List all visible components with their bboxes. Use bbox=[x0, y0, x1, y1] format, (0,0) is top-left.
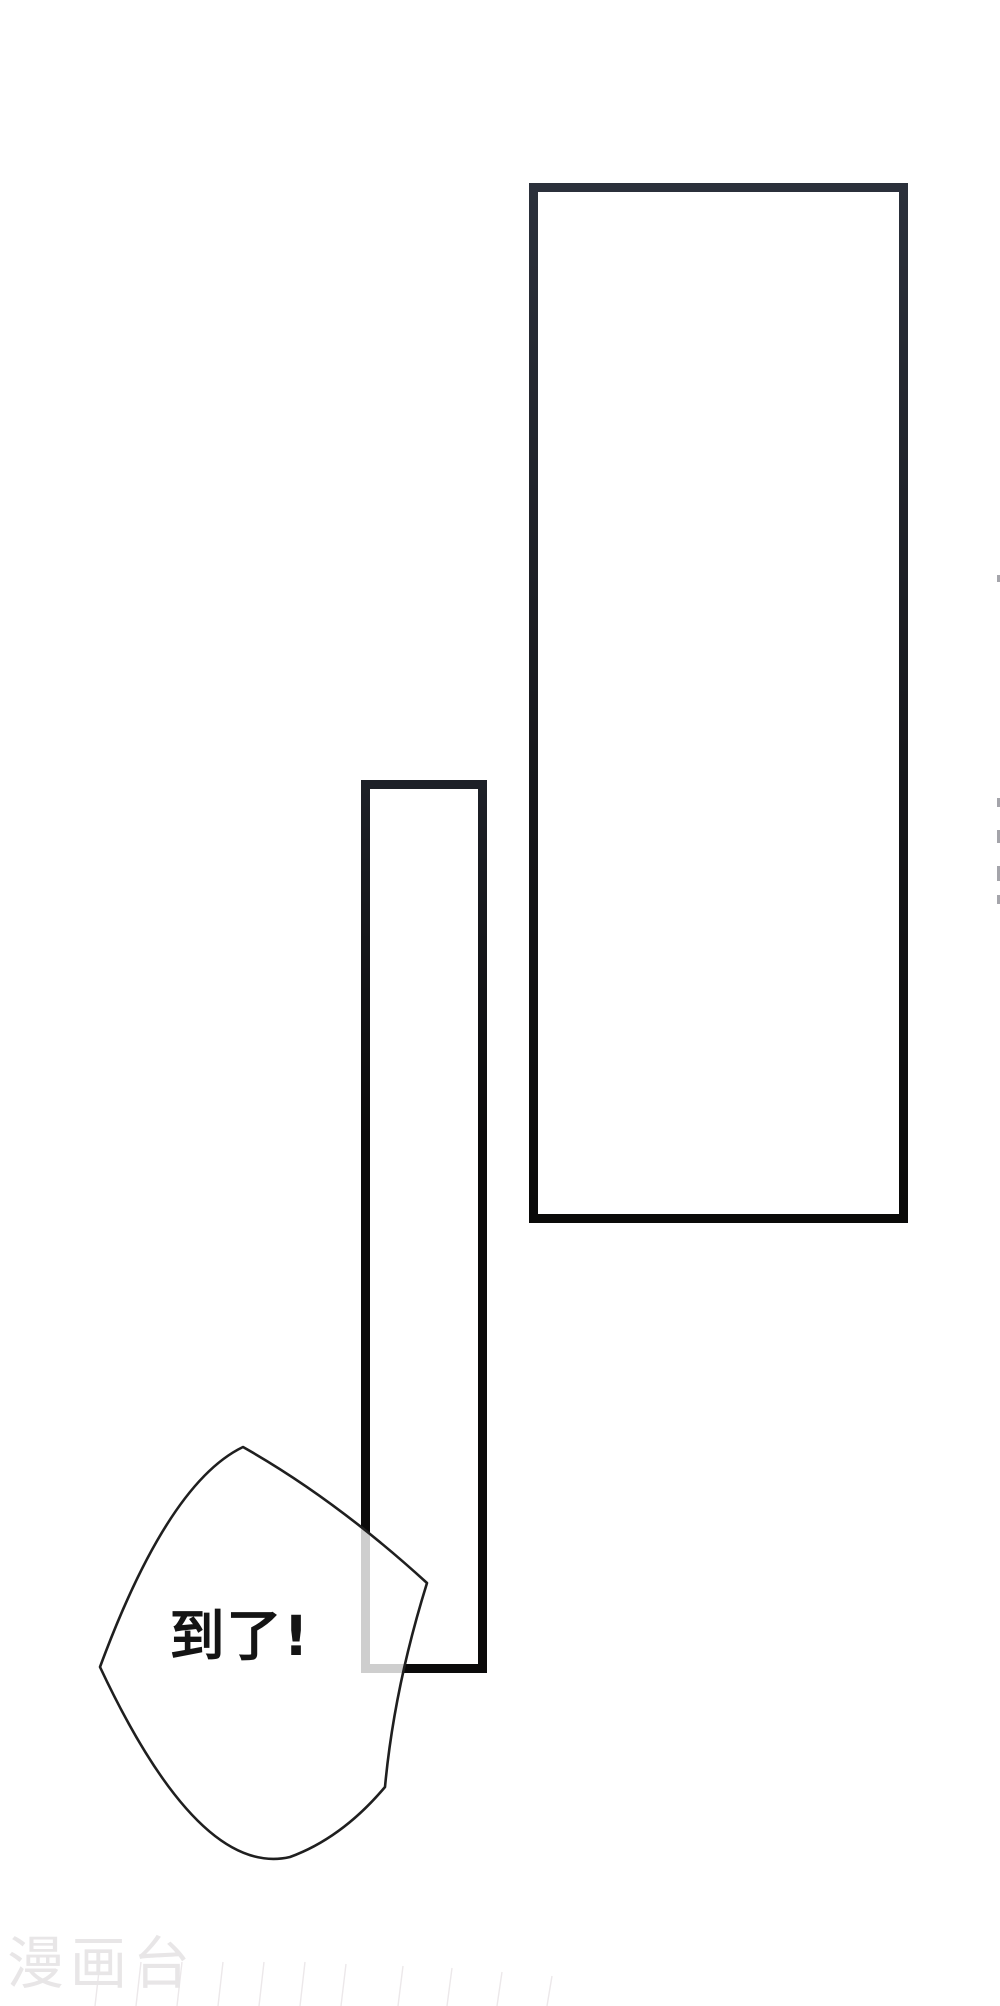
speech-bubble-text: 到了! bbox=[150, 1604, 330, 1674]
watermark: 漫画台 bbox=[7, 1934, 196, 1994]
comic-art-canvas bbox=[0, 0, 1000, 2006]
panel-tall bbox=[366, 785, 483, 1669]
panel-large bbox=[534, 188, 904, 1219]
comic-page: 到了! 漫画台 bbox=[0, 0, 1000, 2006]
